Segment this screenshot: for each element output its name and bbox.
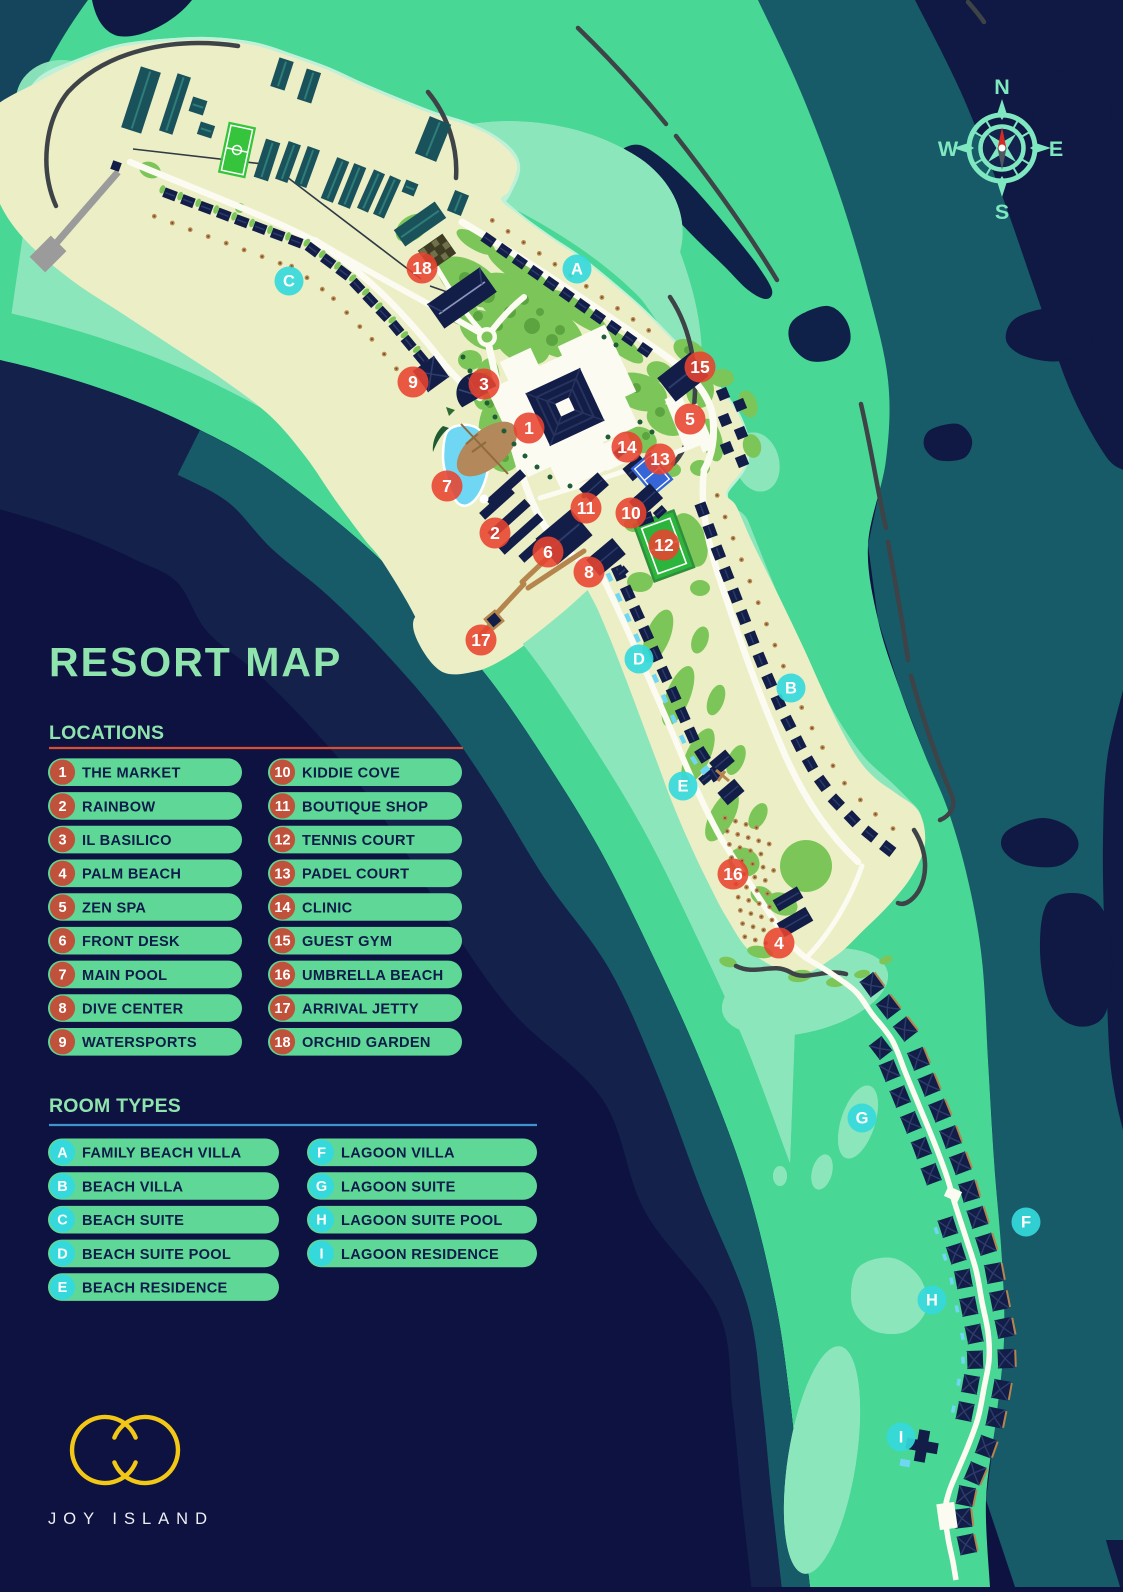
svg-text:A: A xyxy=(571,261,583,279)
svg-text:I: I xyxy=(319,1246,323,1262)
svg-text:IL BASILICO: IL BASILICO xyxy=(82,833,172,849)
svg-text:E: E xyxy=(677,778,688,796)
svg-text:9: 9 xyxy=(408,372,418,392)
svg-text:LAGOON VILLA: LAGOON VILLA xyxy=(341,1146,455,1162)
svg-text:A: A xyxy=(57,1145,68,1161)
svg-text:8: 8 xyxy=(58,1001,66,1017)
svg-text:MAIN POOL: MAIN POOL xyxy=(82,968,167,984)
svg-text:2: 2 xyxy=(58,799,66,815)
svg-text:4: 4 xyxy=(774,933,784,953)
svg-text:14: 14 xyxy=(274,900,290,916)
svg-text:15: 15 xyxy=(274,934,290,950)
svg-text:16: 16 xyxy=(274,967,290,983)
svg-text:13: 13 xyxy=(650,449,670,469)
svg-text:13: 13 xyxy=(274,866,290,882)
svg-text:F: F xyxy=(1021,1214,1031,1232)
svg-text:PADEL COURT: PADEL COURT xyxy=(302,867,409,883)
svg-text:BEACH SUITE: BEACH SUITE xyxy=(82,1213,184,1229)
svg-text:1: 1 xyxy=(524,418,534,438)
svg-text:E: E xyxy=(1049,137,1063,161)
svg-text:BEACH SUITE POOL: BEACH SUITE POOL xyxy=(82,1247,231,1263)
svg-text:G: G xyxy=(316,1179,327,1195)
svg-text:12: 12 xyxy=(654,535,674,555)
svg-text:CLINIC: CLINIC xyxy=(302,900,353,916)
svg-text:LOCATIONS: LOCATIONS xyxy=(49,722,164,744)
svg-text:D: D xyxy=(633,651,645,669)
svg-text:11: 11 xyxy=(577,498,596,518)
svg-text:7: 7 xyxy=(58,967,66,983)
svg-text:ROOM TYPES: ROOM TYPES xyxy=(49,1095,181,1117)
svg-text:16: 16 xyxy=(723,864,743,884)
svg-text:ORCHID GARDEN: ORCHID GARDEN xyxy=(302,1035,431,1051)
svg-text:2: 2 xyxy=(490,523,500,543)
svg-text:JOY ISLAND: JOY ISLAND xyxy=(48,1510,214,1528)
svg-text:B: B xyxy=(57,1179,67,1195)
svg-text:10: 10 xyxy=(274,765,290,781)
svg-text:C: C xyxy=(283,273,295,291)
svg-text:ZEN SPA: ZEN SPA xyxy=(82,900,146,916)
svg-text:D: D xyxy=(57,1246,67,1262)
svg-text:E: E xyxy=(58,1280,68,1296)
svg-text:PALM BEACH: PALM BEACH xyxy=(82,867,181,883)
svg-text:FRONT DESK: FRONT DESK xyxy=(82,934,180,950)
svg-text:DIVE CENTER: DIVE CENTER xyxy=(82,1002,184,1018)
svg-text:3: 3 xyxy=(58,833,66,849)
svg-text:G: G xyxy=(856,1110,869,1128)
svg-text:8: 8 xyxy=(584,562,594,582)
svg-text:H: H xyxy=(316,1213,326,1229)
svg-text:11: 11 xyxy=(275,799,290,815)
svg-text:W: W xyxy=(938,137,959,161)
svg-text:BEACH VILLA: BEACH VILLA xyxy=(82,1179,184,1195)
svg-text:4: 4 xyxy=(58,866,66,882)
svg-text:18: 18 xyxy=(412,258,432,278)
svg-text:1: 1 xyxy=(58,765,66,781)
svg-text:ARRIVAL JETTY: ARRIVAL JETTY xyxy=(302,1002,419,1018)
svg-text:7: 7 xyxy=(442,476,452,496)
svg-text:BEACH RESIDENCE: BEACH RESIDENCE xyxy=(82,1281,228,1297)
svg-text:THE MARKET: THE MARKET xyxy=(82,766,181,782)
svg-text:10: 10 xyxy=(621,503,641,523)
svg-text:KIDDIE COVE: KIDDIE COVE xyxy=(302,766,400,782)
svg-text:I: I xyxy=(899,1429,904,1447)
svg-text:15: 15 xyxy=(690,357,710,377)
svg-text:12: 12 xyxy=(274,833,290,849)
svg-text:RAINBOW: RAINBOW xyxy=(82,799,155,815)
svg-text:LAGOON RESIDENCE: LAGOON RESIDENCE xyxy=(341,1247,499,1263)
svg-text:N: N xyxy=(994,75,1010,99)
svg-text:UMBRELLA BEACH: UMBRELLA BEACH xyxy=(302,968,443,984)
svg-text:TENNIS COURT: TENNIS COURT xyxy=(302,833,415,849)
svg-text:6: 6 xyxy=(543,542,553,562)
svg-text:6: 6 xyxy=(58,934,66,950)
svg-text:BOUTIQUE SHOP: BOUTIQUE SHOP xyxy=(302,799,428,815)
svg-text:LAGOON SUITE: LAGOON SUITE xyxy=(341,1179,456,1195)
svg-text:5: 5 xyxy=(685,409,695,429)
svg-text:17: 17 xyxy=(471,630,490,650)
svg-text:GUEST GYM: GUEST GYM xyxy=(302,934,392,950)
svg-text:5: 5 xyxy=(58,900,66,916)
svg-text:H: H xyxy=(926,1292,938,1310)
svg-text:14: 14 xyxy=(617,437,637,457)
svg-text:F: F xyxy=(317,1145,326,1161)
svg-text:C: C xyxy=(57,1213,68,1229)
svg-text:3: 3 xyxy=(479,374,489,394)
svg-text:LAGOON SUITE POOL: LAGOON SUITE POOL xyxy=(341,1213,503,1229)
svg-text:WATERSPORTS: WATERSPORTS xyxy=(82,1035,197,1051)
svg-text:S: S xyxy=(995,200,1009,224)
svg-text:17: 17 xyxy=(274,1001,290,1017)
svg-text:9: 9 xyxy=(58,1035,66,1051)
svg-text:18: 18 xyxy=(274,1035,290,1051)
svg-text:B: B xyxy=(785,680,797,698)
svg-text:RESORT MAP: RESORT MAP xyxy=(49,639,342,685)
svg-text:FAMILY BEACH VILLA: FAMILY BEACH VILLA xyxy=(82,1146,242,1162)
